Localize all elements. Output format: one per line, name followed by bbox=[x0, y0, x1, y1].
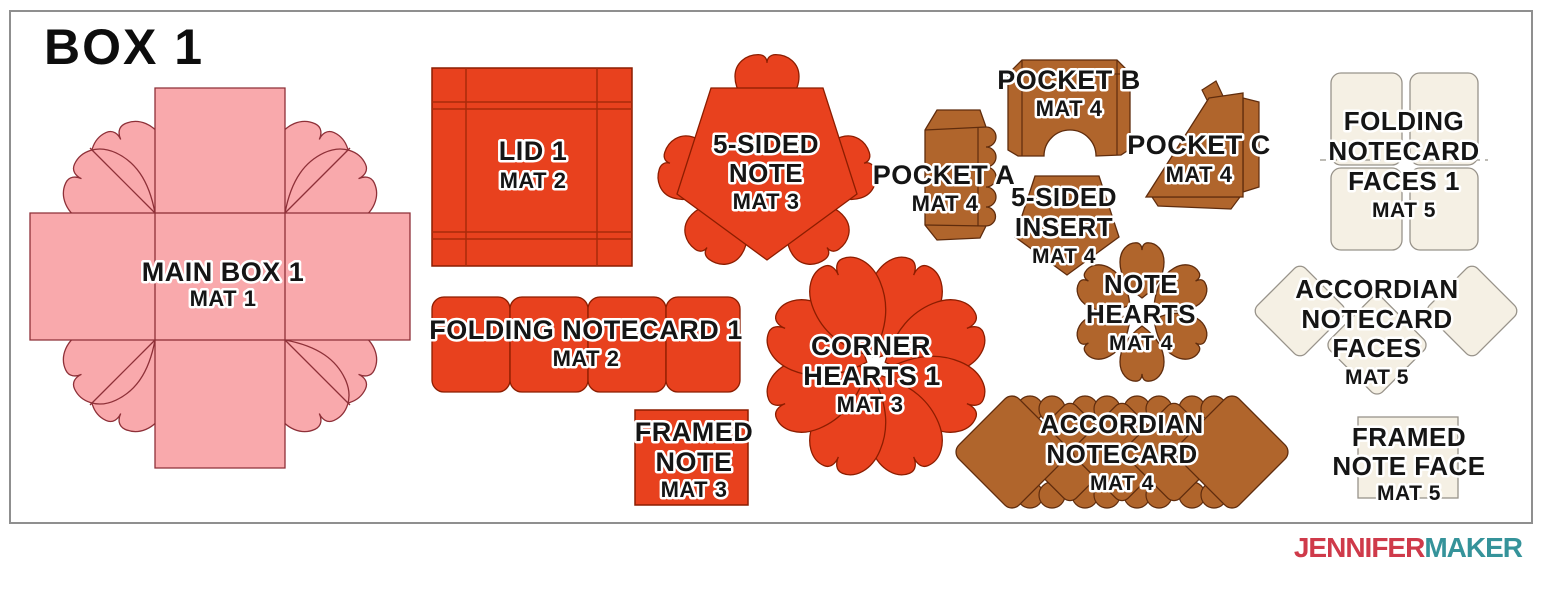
note-hearts-label-1: NOTE bbox=[1104, 269, 1178, 299]
pocket-a-label: POCKET A bbox=[873, 160, 1016, 190]
note-hearts-mat: MAT 4 bbox=[1109, 332, 1173, 355]
main-box-label: MAIN BOX 1 bbox=[142, 257, 305, 287]
five-sided-note-label-2: NOTE bbox=[729, 158, 803, 188]
accordian-notecard-label-1: ACCORDIAN bbox=[1040, 409, 1203, 439]
box1-pattern-canvas: MAIN BOX 1 MAT 1 LID 1 MAT 2 FOLDING NOT… bbox=[0, 0, 1550, 603]
framed-note-face-mat: MAT 5 bbox=[1377, 482, 1441, 505]
framed-note-label-1: FRAMED bbox=[635, 417, 754, 447]
page-title: BOX 1 bbox=[44, 19, 204, 75]
accordian-notecard-faces-label-3: FACES bbox=[1332, 333, 1421, 363]
accordian-notecard-faces-label-2: NOTECARD bbox=[1301, 304, 1452, 334]
main-box-mat: MAT 1 bbox=[190, 286, 257, 311]
lid-square bbox=[432, 68, 632, 266]
five-sided-note-label-1: 5-SIDED bbox=[713, 129, 819, 159]
framed-note-mat: MAT 3 bbox=[661, 477, 728, 502]
jennifermaker-logo: JENNIFERMAKER bbox=[1294, 532, 1523, 563]
pocket-b-mat: MAT 4 bbox=[1036, 96, 1103, 121]
folding-notecard-faces-mat: MAT 5 bbox=[1372, 199, 1436, 222]
folding-notecard-faces-label-2: NOTECARD bbox=[1328, 136, 1479, 166]
folding-notecard-mat: MAT 2 bbox=[553, 346, 620, 371]
corner-hearts-mat: MAT 3 bbox=[837, 392, 904, 417]
corner-hearts-label-2: HEARTS 1 bbox=[803, 361, 941, 391]
five-sided-insert-mat: MAT 4 bbox=[1032, 245, 1096, 268]
accordian-notecard-faces-label-1: ACCORDIAN bbox=[1295, 274, 1458, 304]
corner-hearts-label-1: CORNER bbox=[811, 331, 931, 361]
folding-notecard-faces-label-3: FACES 1 bbox=[1348, 166, 1460, 196]
logo-maker: MAKER bbox=[1424, 532, 1522, 563]
folding-notecard-label: FOLDING NOTECARD 1 bbox=[429, 315, 743, 345]
five-sided-note-mat: MAT 3 bbox=[733, 189, 800, 214]
framed-note-face-label-2: NOTE FACE bbox=[1332, 451, 1485, 481]
pocket-c-label: POCKET C bbox=[1127, 130, 1271, 160]
lid-mat: MAT 2 bbox=[500, 168, 567, 193]
lid-label: LID 1 bbox=[499, 136, 568, 166]
five-sided-insert-label-2: INSERT bbox=[1015, 212, 1113, 242]
five-sided-insert-label-1: 5-SIDED bbox=[1011, 182, 1117, 212]
note-hearts-label-2: HEARTS bbox=[1086, 299, 1196, 329]
logo-jennifer: JENNIFER bbox=[1294, 532, 1425, 563]
accordian-notecard-mat: MAT 4 bbox=[1090, 472, 1154, 495]
pocket-c-mat: MAT 4 bbox=[1166, 162, 1233, 187]
framed-note-label-2: NOTE bbox=[655, 447, 732, 477]
lid-piece bbox=[432, 68, 632, 266]
folding-notecard-faces-label-1: FOLDING bbox=[1344, 106, 1465, 136]
pocket-b-label: POCKET B bbox=[997, 65, 1141, 95]
accordian-notecard-label-2: NOTECARD bbox=[1046, 439, 1197, 469]
accordian-notecard-faces-mat: MAT 5 bbox=[1345, 366, 1409, 389]
pocket-a-mat: MAT 4 bbox=[912, 191, 979, 216]
framed-note-face-label-1: FRAMED bbox=[1352, 422, 1466, 452]
